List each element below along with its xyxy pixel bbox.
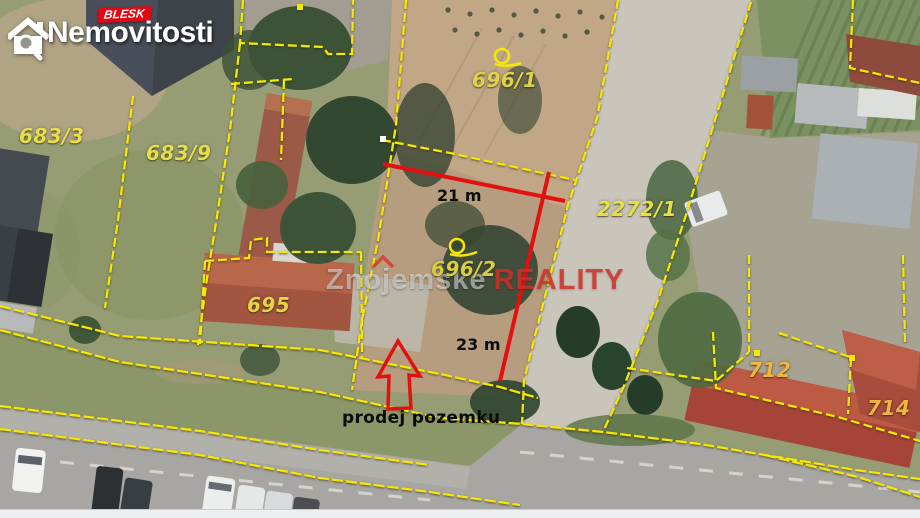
parcel-label-683-3: 683/3 <box>19 124 84 148</box>
parcel-label-695: 695 <box>247 293 290 317</box>
parcel-label-712: 712 <box>748 358 791 382</box>
aerial-map-view: BLESK Nemovitosti Znojemske REALITY 683/… <box>0 0 920 518</box>
parcel-label-683-9: 683/9 <box>146 141 211 165</box>
bottom-edge-bar <box>0 509 920 518</box>
logo-name: Nemovitosti <box>47 16 213 50</box>
sale-annotation-label: prodej pozemku <box>342 408 500 428</box>
parcel-label-714: 714 <box>867 396 910 420</box>
watermark-word2: REALITY <box>494 264 625 297</box>
parcel-label-696-2: 696/2 <box>431 257 496 281</box>
house-magnifier-icon <box>8 17 52 61</box>
measurement-label-depth: 23 m <box>456 335 501 354</box>
parcel-label-2272-1: 2272/1 <box>597 197 677 221</box>
measurement-label-width: 21 m <box>437 186 482 205</box>
blesk-nemovitosti-logo: BLESK Nemovitosti <box>6 4 221 66</box>
parcel-label-696-1: 696/1 <box>472 68 537 92</box>
red-roof-icon <box>371 254 397 270</box>
